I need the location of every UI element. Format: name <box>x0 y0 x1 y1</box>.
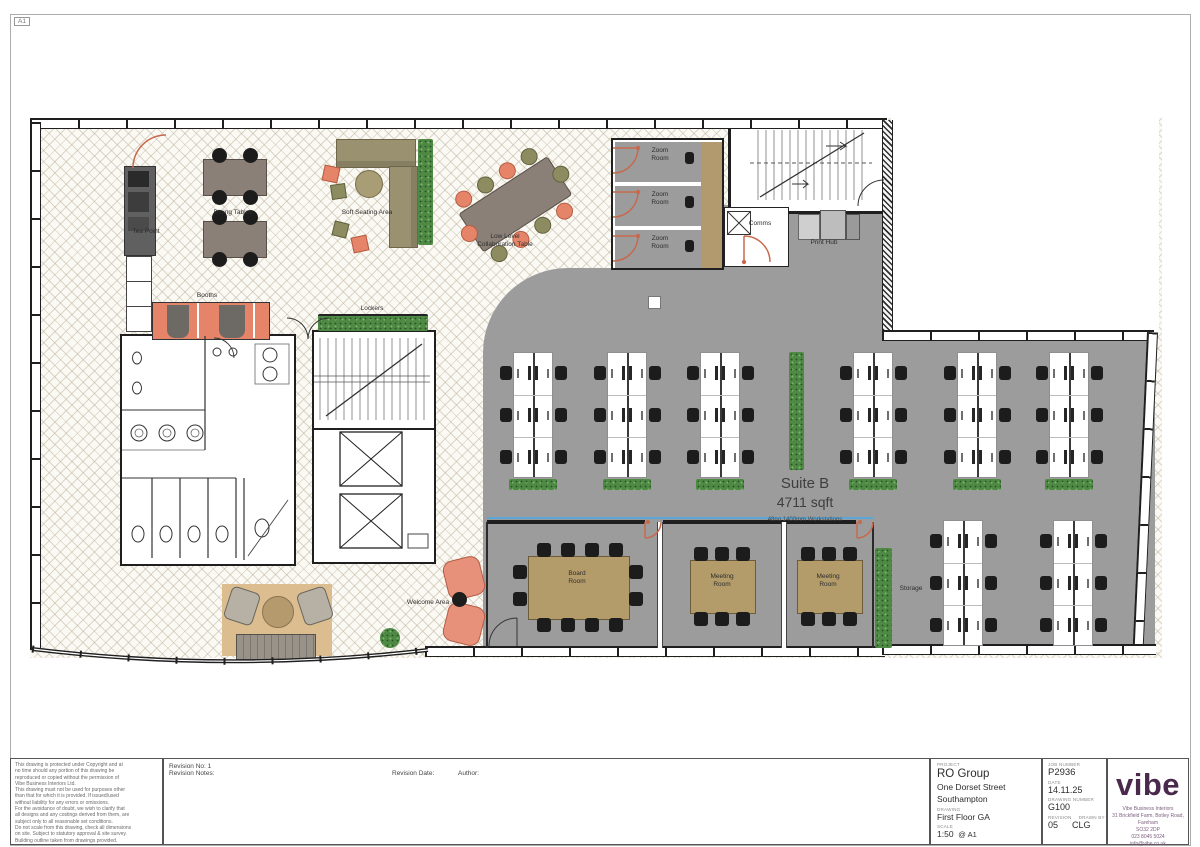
monitor-icon <box>715 366 718 380</box>
cabinet-shelf-line <box>126 281 152 282</box>
desk-accessory <box>517 369 519 378</box>
task-chair <box>930 576 942 590</box>
cabinet-shelf-line <box>126 306 152 307</box>
monitor-icon <box>1064 366 1067 380</box>
monitor-icon <box>622 408 625 422</box>
stool <box>330 183 347 200</box>
wall-bottom-mid <box>425 646 885 657</box>
task-chair <box>944 450 956 464</box>
task-chair <box>555 450 567 464</box>
task-chair <box>649 408 661 422</box>
plan-label: Lockers <box>361 305 384 313</box>
task-chair <box>1036 450 1048 464</box>
board-room-table <box>528 556 630 620</box>
revision-notes-label: Revision Notes: <box>169 770 215 777</box>
desk-accessory <box>547 369 549 378</box>
desk-accessory <box>1057 621 1059 630</box>
desk-accessory <box>947 537 949 546</box>
booths-band <box>152 302 270 340</box>
meeting-chair <box>736 547 750 561</box>
desk-accessory <box>1087 579 1089 588</box>
desk-end-planter <box>509 479 557 490</box>
meeting-chair <box>694 547 708 561</box>
desk-accessory <box>961 369 963 378</box>
board-chair <box>537 543 551 557</box>
task-chair <box>840 366 852 380</box>
desk-accessory <box>704 369 706 378</box>
desk-accessory <box>857 453 859 462</box>
desk-accessory <box>961 411 963 420</box>
desk-end-planter <box>696 479 744 490</box>
task-chair <box>1040 534 1052 548</box>
desk-accessory <box>1053 411 1055 420</box>
booth-divider <box>197 303 199 338</box>
task-chair <box>1091 408 1103 422</box>
riser-box <box>727 211 751 235</box>
task-chair <box>1095 576 1107 590</box>
task-chair <box>1040 576 1052 590</box>
dining-table <box>203 221 267 258</box>
wc-core <box>120 334 296 566</box>
tea-point-cabinets <box>126 256 152 332</box>
dining-chair <box>212 148 227 163</box>
desk-accessory <box>947 579 949 588</box>
monitor-icon <box>958 576 961 590</box>
desk-accessory <box>641 411 643 420</box>
plant <box>380 628 400 648</box>
monitor-icon <box>1068 618 1071 632</box>
plan-label: Zoom Room <box>651 191 668 207</box>
revision-date-label: Revision Date: <box>392 770 434 777</box>
plan-label: Tea Point <box>132 228 159 236</box>
desk-accessory <box>991 411 993 420</box>
dining-chair <box>243 252 258 267</box>
printer-unit <box>798 214 820 240</box>
desk-end-planter <box>603 479 651 490</box>
meeting-chair <box>715 547 729 561</box>
monitor-icon <box>722 408 725 422</box>
task-chair <box>1036 408 1048 422</box>
job-number: P2936 <box>1048 767 1106 778</box>
wall-left <box>30 122 41 650</box>
monitor-icon <box>1075 576 1078 590</box>
task-chair <box>930 534 942 548</box>
plan-label: Booths <box>197 292 217 300</box>
notes-cell: This drawing is protected under Copyrigh… <box>10 758 163 845</box>
task-chair <box>985 576 997 590</box>
monitor-icon <box>965 534 968 548</box>
logo-address-line: info@vibe.co.uk <box>1108 841 1188 847</box>
outside-tenancy-area <box>891 118 1159 332</box>
monitor-icon <box>979 366 982 380</box>
task-chair <box>555 366 567 380</box>
vibe-address: Vibe Business Interiors31 Brickfield Far… <box>1108 806 1188 847</box>
plan-label: Zoom Room <box>651 147 668 163</box>
zoom-room-chair <box>685 196 694 208</box>
note-line: Building outline taken from drawings pro… <box>15 838 158 844</box>
plan-label: Zoom Room <box>651 235 668 251</box>
desk-accessory <box>734 369 736 378</box>
stool <box>351 235 370 254</box>
desk-accessory <box>1053 369 1055 378</box>
plan-label: Suite B <box>781 475 829 494</box>
revision-author-label: Author: <box>458 770 479 777</box>
task-chair <box>1095 618 1107 632</box>
logo-address-line: Vibe Business Interiors <box>1108 806 1188 813</box>
numbers-cell: JOB NUMBER P2936 DATE 14.11.25 DRAWING N… <box>1042 758 1107 845</box>
monitor-icon <box>958 618 961 632</box>
desk-accessory <box>1057 579 1059 588</box>
task-chair <box>840 450 852 464</box>
project-label: PROJECT <box>937 762 1041 767</box>
plan-label: 4711 sqft <box>777 494 834 512</box>
monitor-icon <box>1075 534 1078 548</box>
project-cell: PROJECT RO Group One Dorset Street South… <box>930 758 1042 845</box>
wall-top-right <box>882 330 1154 341</box>
desk-accessory <box>611 411 613 420</box>
desk-accessory <box>887 369 889 378</box>
monitor-icon <box>965 576 968 590</box>
lounge-sofa <box>236 634 316 660</box>
monitor-icon <box>1064 408 1067 422</box>
plan-label: Low Level Collaboration Table <box>477 233 533 249</box>
tea-point-appliance <box>128 192 149 212</box>
monitor-icon <box>1064 450 1067 464</box>
desk-accessory <box>887 411 889 420</box>
monitor-icon <box>715 408 718 422</box>
planting-strip <box>418 139 433 245</box>
scale-value: 1:50 @ A1 <box>937 829 1041 839</box>
vibe-logo: vibe <box>1108 769 1188 800</box>
task-chair <box>500 450 512 464</box>
monitor-icon <box>535 408 538 422</box>
floor-plan: Tea PointDining TablesSoft Seating AreaL… <box>0 0 1200 847</box>
plan-label: Print Hub <box>810 239 837 247</box>
desk-accessory <box>887 453 889 462</box>
task-chair <box>555 408 567 422</box>
desk-accessory <box>641 369 643 378</box>
desk-accessory <box>704 411 706 420</box>
dining-table <box>203 159 267 196</box>
sofa-vertical <box>389 166 418 248</box>
task-chair <box>944 408 956 422</box>
monitor-icon <box>979 408 982 422</box>
task-chair <box>500 366 512 380</box>
desk-accessory <box>517 411 519 420</box>
desk-accessory <box>734 453 736 462</box>
logo-address-line: 31 Brickfield Farm, Botley Road, Fareham <box>1108 813 1188 827</box>
task-chair <box>895 450 907 464</box>
desk-accessory <box>977 621 979 630</box>
revision-drawn-values: 05CLG <box>1048 820 1106 830</box>
mid-plan-planting <box>789 352 804 470</box>
column <box>648 296 661 309</box>
desk-accessory <box>517 453 519 462</box>
task-chair <box>1091 450 1103 464</box>
desk-end-planter <box>1045 479 1093 490</box>
project-address2: Southampton <box>937 794 1041 804</box>
desk-end-planter <box>953 479 1001 490</box>
revision-no: Revision No: 1 <box>169 763 211 770</box>
monitor-icon <box>972 408 975 422</box>
lift-core <box>312 428 436 564</box>
tea-point-appliance <box>128 171 149 187</box>
monitor-icon <box>1071 366 1074 380</box>
desk-accessory <box>977 537 979 546</box>
task-chair <box>649 366 661 380</box>
room-partition <box>781 522 787 648</box>
logo-address-line: SO32 2DP <box>1108 827 1188 834</box>
desk-accessory <box>947 621 949 630</box>
logo-cell: vibe Vibe Business Interiors31 Brickfiel… <box>1107 758 1189 845</box>
plan-label: Storage <box>900 585 923 593</box>
monitor-icon <box>528 450 531 464</box>
glazed-front <box>487 520 645 524</box>
task-chair <box>944 366 956 380</box>
task-chair <box>985 618 997 632</box>
booth-pod <box>219 305 245 338</box>
desk-end-planter <box>849 479 897 490</box>
monitor-icon <box>629 450 632 464</box>
desk-accessory <box>1083 411 1085 420</box>
desk-accessory <box>857 411 859 420</box>
board-chair <box>609 543 623 557</box>
monitor-icon <box>1068 576 1071 590</box>
meeting-chair <box>822 547 836 561</box>
monitor-icon <box>629 366 632 380</box>
monitor-icon <box>535 450 538 464</box>
meeting-chair <box>801 547 815 561</box>
monitor-icon <box>868 450 871 464</box>
task-chair <box>687 408 699 422</box>
board-chair <box>561 543 575 557</box>
date-value: 14.11.25 <box>1048 785 1106 795</box>
task-chair <box>594 366 606 380</box>
meeting-chair <box>694 612 708 626</box>
monitor-icon <box>868 366 871 380</box>
monitor-icon <box>1071 408 1074 422</box>
monitor-icon <box>972 450 975 464</box>
dining-chair <box>212 190 227 205</box>
desk-accessory <box>991 369 993 378</box>
project-address1: One Dorset Street <box>937 782 1041 792</box>
welcome-side-table <box>452 592 467 607</box>
meeting-chair <box>736 612 750 626</box>
task-chair <box>840 408 852 422</box>
desk-accessory <box>734 411 736 420</box>
task-chair <box>999 408 1011 422</box>
monitor-icon <box>1068 534 1071 548</box>
task-chair <box>500 408 512 422</box>
task-chair <box>930 618 942 632</box>
desk-accessory <box>857 369 859 378</box>
desk-accessory <box>977 579 979 588</box>
board-chair <box>585 618 599 632</box>
board-chair <box>561 618 575 632</box>
monitor-icon <box>528 408 531 422</box>
sheet-format-label: A1 <box>14 17 30 26</box>
plan-label: Soft Seating Area <box>342 209 393 217</box>
task-chair <box>985 534 997 548</box>
stair-core-top-right <box>728 120 892 214</box>
monitor-icon <box>1071 450 1074 464</box>
room-side-wall <box>872 522 874 648</box>
monitor-icon <box>535 366 538 380</box>
desk-accessory <box>1083 369 1085 378</box>
dining-chair <box>243 190 258 205</box>
monitor-icon <box>875 408 878 422</box>
plan-label: Board Room <box>568 570 585 586</box>
desk-accessory <box>1053 453 1055 462</box>
wall-top <box>30 118 887 129</box>
board-chair <box>629 592 643 606</box>
notes-text: This drawing is protected under Copyrigh… <box>11 759 162 847</box>
task-chair <box>742 366 754 380</box>
desk-accessory <box>991 453 993 462</box>
task-chair <box>1091 366 1103 380</box>
desk-accessory <box>1083 453 1085 462</box>
meeting-chair <box>822 612 836 626</box>
zoom-room-chair <box>685 240 694 252</box>
dining-chair <box>212 252 227 267</box>
board-chair <box>513 592 527 606</box>
desk-accessory <box>547 411 549 420</box>
task-chair <box>999 450 1011 464</box>
monitor-icon <box>875 450 878 464</box>
room-partition <box>657 522 663 648</box>
desk-accessory <box>1087 537 1089 546</box>
task-chair <box>895 366 907 380</box>
drawing-sheet: A1 <box>0 0 1200 847</box>
task-chair <box>687 366 699 380</box>
monitor-icon <box>868 408 871 422</box>
wall-core-right <box>882 120 893 336</box>
drawing-title: First Floor GA <box>937 812 1041 822</box>
desk-accessory <box>961 453 963 462</box>
desk-accessory <box>547 453 549 462</box>
room-side-wall <box>486 522 488 648</box>
plan-label: Welcome Area <box>407 599 449 607</box>
logo-address-line: 023 8045 5024 <box>1108 834 1188 841</box>
task-chair <box>742 450 754 464</box>
monitor-icon <box>1075 618 1078 632</box>
monitor-icon <box>965 618 968 632</box>
monitor-icon <box>722 450 725 464</box>
desk-accessory <box>641 453 643 462</box>
board-chair <box>609 618 623 632</box>
timber-bench <box>701 142 722 268</box>
task-chair <box>1036 366 1048 380</box>
monitor-icon <box>622 450 625 464</box>
stool <box>322 165 341 184</box>
monitor-icon <box>715 450 718 464</box>
monitor-icon <box>528 366 531 380</box>
task-chair <box>999 366 1011 380</box>
monitor-icon <box>875 366 878 380</box>
round-coffee-table <box>355 170 383 198</box>
monitor-icon <box>979 450 982 464</box>
project-name: RO Group <box>937 768 1041 780</box>
plan-label: 48no 1400mm Workstations <box>768 517 843 525</box>
plan-label: Dining Tables <box>214 209 253 217</box>
monitor-icon <box>722 366 725 380</box>
desk-accessory <box>611 369 613 378</box>
desk-accessory <box>1087 621 1089 630</box>
lounge-round-table <box>262 596 294 628</box>
monitor-icon <box>629 408 632 422</box>
board-chair <box>537 618 551 632</box>
task-chair <box>742 408 754 422</box>
printer-unit <box>820 210 846 240</box>
desk-accessory <box>704 453 706 462</box>
monitor-icon <box>622 366 625 380</box>
printer-unit <box>846 214 860 240</box>
plan-label: Meeting Room <box>816 573 839 589</box>
plan-label: Meeting Room <box>710 573 733 589</box>
monitor-icon <box>958 534 961 548</box>
dining-chair <box>243 148 258 163</box>
task-chair <box>594 408 606 422</box>
task-chair <box>594 450 606 464</box>
drawing-number: G100 <box>1048 802 1106 812</box>
task-chair <box>1040 618 1052 632</box>
desk-accessory <box>611 453 613 462</box>
meeting-chair <box>843 612 857 626</box>
task-chair <box>687 450 699 464</box>
board-chair <box>513 565 527 579</box>
task-chair <box>1095 534 1107 548</box>
zoom-room-chair <box>685 152 694 164</box>
desk-accessory <box>1057 537 1059 546</box>
lockers-planting <box>318 314 428 331</box>
stair-core-mid <box>312 330 436 432</box>
meeting-chair <box>715 612 729 626</box>
task-chair <box>895 408 907 422</box>
booth-pod <box>167 305 189 338</box>
plan-label: Comms <box>749 220 771 228</box>
open-plan-floor-right <box>888 336 1155 650</box>
meeting-chair <box>801 612 815 626</box>
task-chair <box>649 450 661 464</box>
monitor-icon <box>972 366 975 380</box>
revision-cell: Revision No: 1 Revision Notes: Revision … <box>163 758 930 845</box>
meeting-chair <box>843 547 857 561</box>
board-chair <box>629 565 643 579</box>
board-chair <box>585 543 599 557</box>
booth-divider <box>253 303 255 338</box>
wall-bottom-right <box>882 644 1156 655</box>
storage-planting <box>875 548 892 648</box>
sofa-horizontal <box>336 139 416 168</box>
